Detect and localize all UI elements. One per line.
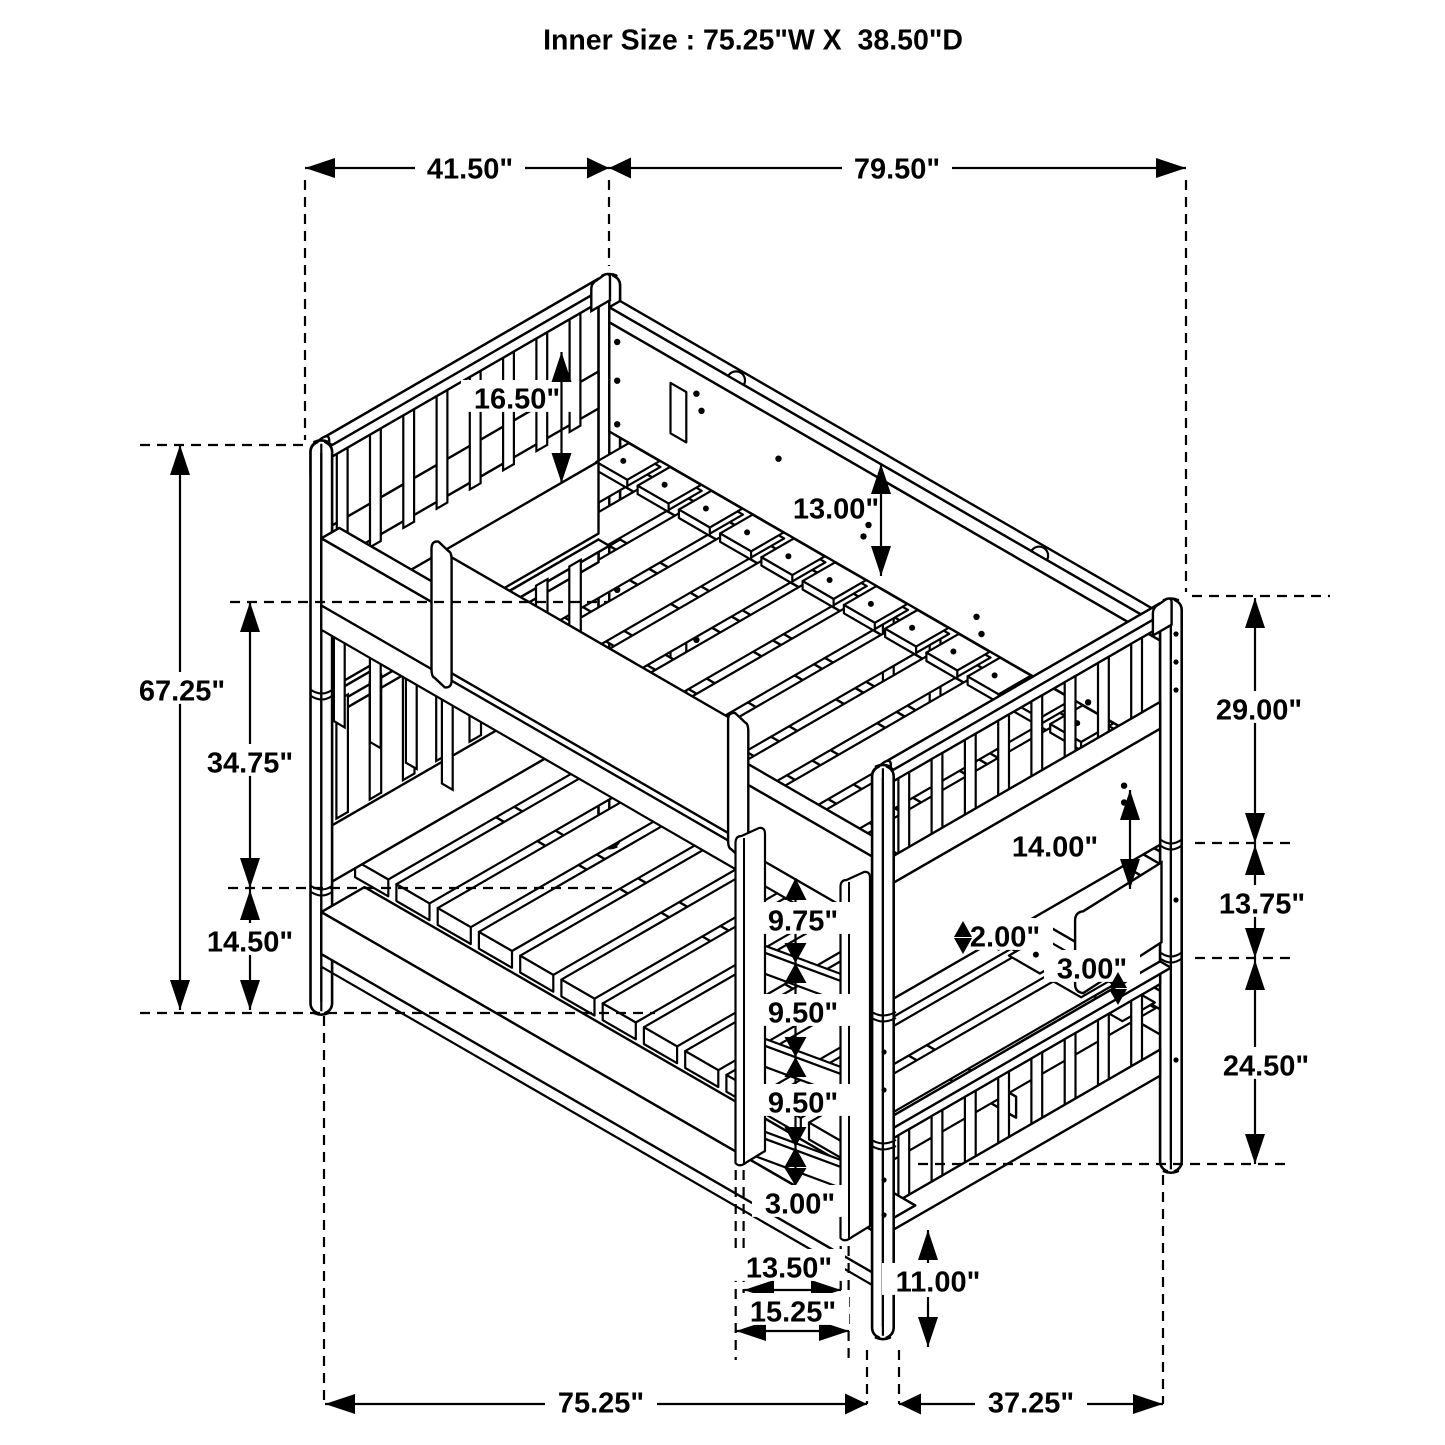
svg-text:9.50": 9.50"	[768, 1087, 838, 1119]
svg-text:2.00": 2.00"	[970, 921, 1040, 953]
svg-text:14.00": 14.00"	[1012, 831, 1098, 863]
svg-text:79.50": 79.50"	[854, 153, 940, 185]
svg-text:11.00": 11.00"	[896, 1266, 981, 1298]
svg-text:16.50": 16.50"	[474, 383, 560, 415]
svg-text:37.25": 37.25"	[988, 1387, 1074, 1419]
svg-text:34.75": 34.75"	[207, 747, 293, 779]
svg-text:75.25": 75.25"	[558, 1387, 644, 1419]
svg-text:3.00": 3.00"	[765, 1188, 835, 1220]
svg-text:67.25": 67.25"	[139, 675, 225, 707]
svg-text:15.25": 15.25"	[750, 1296, 836, 1328]
svg-text:24.50": 24.50"	[1223, 1050, 1309, 1082]
svg-text:9.75": 9.75"	[768, 905, 838, 937]
svg-text:41.50": 41.50"	[427, 153, 513, 185]
svg-text:13.75": 13.75"	[1219, 888, 1305, 920]
svg-text:13.50": 13.50"	[746, 1252, 832, 1284]
svg-text:Inner Size : 75.25"W X 38.50": Inner Size : 75.25"W X 38.50"D	[543, 24, 963, 56]
svg-text:9.50": 9.50"	[768, 997, 838, 1029]
svg-text:29.00": 29.00"	[1216, 694, 1302, 726]
svg-text:13.00": 13.00"	[793, 493, 879, 525]
svg-text:14.50": 14.50"	[207, 926, 293, 958]
